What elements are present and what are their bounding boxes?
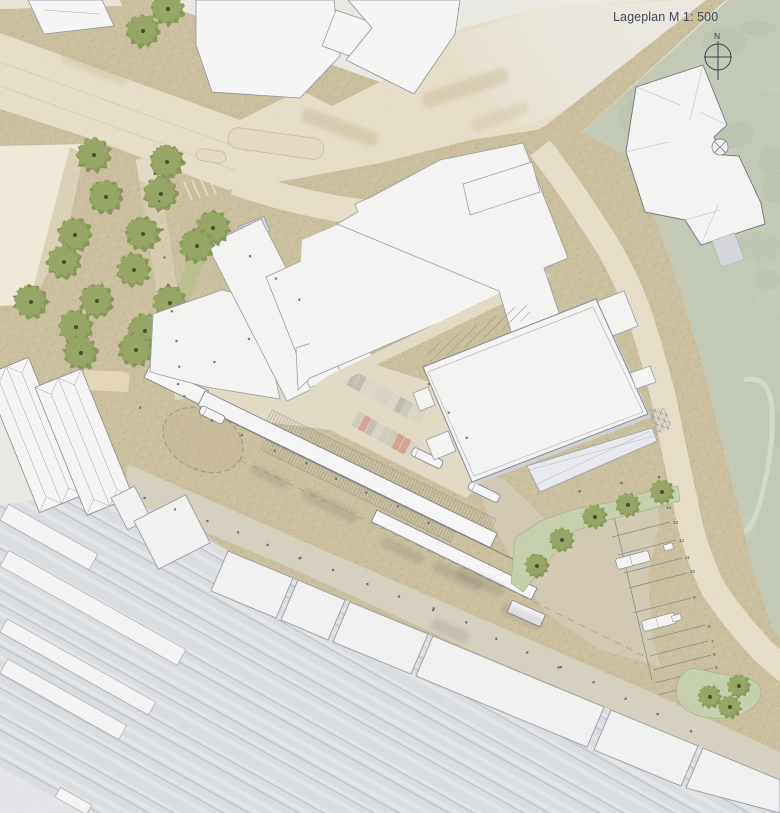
svg-text:N: N — [714, 31, 720, 41]
svg-text:Lageplan M 1: 500: Lageplan M 1: 500 — [613, 10, 718, 24]
